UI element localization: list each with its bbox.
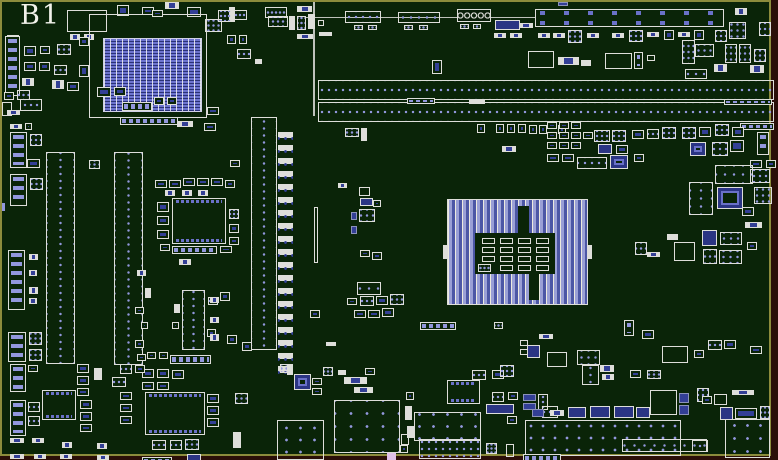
smd-cap[interactable]	[120, 392, 132, 400]
smd-cut[interactable]	[529, 274, 539, 300]
smd-dots[interactable]	[635, 242, 647, 255]
smd-cap[interactable]	[376, 296, 388, 305]
smd-cap[interactable]	[742, 207, 754, 216]
smd-cap[interactable]	[142, 382, 154, 390]
smd-dots[interactable]	[268, 16, 288, 27]
smd-cap[interactable]	[39, 62, 50, 71]
smd-dots[interactable]	[629, 30, 643, 42]
smd-dots[interactable]	[112, 377, 126, 387]
smd-cap[interactable]	[24, 62, 36, 71]
smd-cap[interactable]	[157, 202, 169, 212]
smd-dots[interactable]	[577, 157, 607, 169]
smd-res[interactable]	[29, 298, 37, 304]
smd-dots[interactable]	[486, 443, 497, 454]
smd-vconn[interactable]	[8, 250, 25, 310]
smd-qfn[interactable]	[294, 374, 311, 390]
smd-dots[interactable]	[152, 440, 166, 450]
smd-cap[interactable]	[79, 37, 89, 46]
smd-dots[interactable]	[695, 44, 714, 57]
smd-cap[interactable]	[28, 365, 38, 372]
smd-cap[interactable]	[347, 298, 357, 305]
pcb-board-canvas[interactable]: B1	[0, 0, 771, 456]
smd-res[interactable]	[750, 65, 764, 73]
smd-dots[interactable]	[297, 16, 306, 30]
smd-res[interactable]	[97, 443, 107, 449]
smd-res[interactable]	[29, 270, 37, 276]
smd-cap[interactable]	[732, 127, 744, 137]
smd-pads-h[interactable]	[407, 98, 435, 104]
smd-dots[interactable]	[500, 365, 514, 377]
smd-tick[interactable]	[469, 99, 485, 104]
smd-dots[interactable]	[594, 130, 610, 142]
smd-cap[interactable]	[518, 247, 531, 253]
smd-dots[interactable]	[739, 44, 751, 63]
smd-cap[interactable]	[664, 30, 674, 40]
smd-bluechip[interactable]	[598, 144, 612, 154]
smd-cap[interactable]	[77, 364, 89, 373]
smd-cap[interactable]	[539, 125, 547, 134]
smd-cap[interactable]	[220, 246, 232, 253]
smd-res[interactable]	[502, 146, 516, 152]
io-chip-qfp[interactable]	[42, 390, 76, 420]
smd-res[interactable]	[29, 287, 38, 294]
smd-outline[interactable]	[401, 434, 409, 445]
smd-cap[interactable]	[571, 142, 581, 149]
smd-part[interactable]	[233, 432, 241, 448]
smd-res[interactable]	[62, 442, 72, 448]
smd-part[interactable]	[443, 245, 448, 259]
smd-res[interactable]	[550, 410, 564, 416]
smd-dots[interactable]	[685, 69, 707, 79]
smd-res[interactable]	[647, 32, 659, 37]
smd-res[interactable]	[553, 33, 565, 38]
smd-cap[interactable]	[571, 122, 581, 129]
northbridge-bga[interactable]	[103, 38, 202, 112]
smd-dots[interactable]	[703, 249, 717, 264]
smd-dots[interactable]	[460, 24, 469, 29]
smd-bluechip[interactable]	[568, 407, 586, 418]
smd-part[interactable]	[145, 288, 151, 298]
smd-dots[interactable]	[345, 128, 359, 137]
smd-part[interactable]	[405, 406, 412, 420]
smd-cap[interactable]	[368, 310, 380, 318]
smd-cap[interactable]	[229, 224, 239, 233]
smd-cap[interactable]	[207, 107, 219, 115]
smd-dots[interactable]	[29, 332, 42, 345]
header-footprint[interactable]	[345, 11, 381, 23]
smd-cap[interactable]	[547, 132, 557, 139]
smd-cap[interactable]	[702, 396, 712, 404]
smd-dots[interactable]	[29, 349, 42, 361]
smd-res[interactable]	[714, 64, 727, 72]
smd-dots[interactable]	[682, 40, 695, 64]
smd-cap[interactable]	[547, 142, 557, 149]
smd-dots[interactable]	[612, 130, 626, 142]
smd-dots[interactable]	[472, 370, 486, 380]
smd-cap[interactable]	[197, 178, 209, 186]
smd-cap[interactable]	[583, 132, 593, 139]
smd-tick[interactable]	[667, 234, 678, 240]
smd-pad[interactable]	[2, 203, 5, 211]
smd-cap[interactable]	[207, 418, 219, 427]
smd-res[interactable]	[165, 2, 179, 9]
smd-tick[interactable]	[319, 32, 332, 36]
smd-tick[interactable]	[255, 59, 262, 64]
smd-dots[interactable]	[708, 340, 722, 350]
smd-qfp[interactable]	[447, 380, 480, 404]
smd-cap[interactable]	[154, 97, 164, 105]
header-footprint[interactable]	[398, 12, 440, 23]
smd-res[interactable]	[22, 78, 34, 86]
smd-cap[interactable]	[735, 408, 757, 419]
smd-dots[interactable]	[237, 49, 251, 59]
smd-vconn[interactable]	[10, 400, 26, 436]
smd-cap[interactable]	[432, 60, 442, 74]
smd-cap[interactable]	[699, 127, 711, 137]
smd-pads-h[interactable]	[420, 322, 456, 330]
smd-part[interactable]	[287, 365, 293, 375]
smd-cap[interactable]	[500, 247, 513, 253]
smd-dots[interactable]	[120, 364, 132, 374]
smd-cap[interactable]	[536, 256, 549, 262]
smd-dots[interactable]	[682, 127, 696, 139]
smd-outline[interactable]	[359, 187, 370, 196]
smd-pads-h[interactable]	[122, 102, 152, 111]
smd-cap[interactable]	[27, 159, 40, 168]
smd-cap[interactable]	[647, 55, 655, 61]
smd-cap[interactable]	[135, 365, 145, 373]
smd-dots[interactable]	[57, 44, 71, 55]
smd-cap[interactable]	[137, 354, 146, 361]
smd-dots[interactable]	[473, 24, 481, 29]
smd-cap[interactable]	[114, 87, 126, 96]
super-io-qfp[interactable]	[145, 392, 205, 435]
audio-jacks-footprint[interactable]	[457, 9, 491, 22]
smd-cap[interactable]	[172, 370, 184, 379]
smd-bluechip[interactable]	[614, 406, 634, 418]
smd-cap[interactable]	[694, 30, 704, 40]
smd-res[interactable]	[210, 334, 219, 341]
component-outline[interactable]	[674, 242, 695, 261]
smd-dots[interactable]	[218, 10, 232, 22]
smd-res[interactable]	[32, 438, 44, 443]
smd-cap[interactable]	[630, 370, 641, 378]
smd-cap[interactable]	[547, 122, 557, 129]
smd-dots[interactable]	[357, 282, 381, 295]
smd-bluechip[interactable]	[360, 198, 373, 206]
smd-part[interactable]	[174, 304, 180, 313]
smd-cap[interactable]	[632, 130, 644, 139]
smd-cap[interactable]	[24, 46, 36, 56]
smd-res[interactable]	[735, 8, 747, 15]
smd-cap[interactable]	[312, 378, 322, 385]
smd-cap[interactable]	[318, 20, 324, 26]
smd-res[interactable]	[612, 33, 624, 38]
smd-padd[interactable]	[679, 393, 689, 403]
smd-qfn[interactable]	[690, 142, 706, 156]
smd-cap[interactable]	[529, 125, 537, 134]
smd-cap[interactable]	[562, 154, 574, 162]
smd-cap[interactable]	[482, 247, 495, 253]
smd-pads-h[interactable]	[724, 99, 772, 105]
connector-footprint[interactable]	[277, 420, 324, 460]
smd-cap[interactable]	[147, 352, 156, 359]
smd-dots[interactable]	[719, 250, 742, 264]
edge-connector[interactable]	[5, 36, 20, 96]
smd-cap[interactable]	[507, 416, 517, 424]
smd-cap[interactable]	[571, 132, 581, 139]
smd-res[interactable]	[210, 317, 219, 323]
smd-cap[interactable]	[360, 250, 370, 257]
component-outline[interactable]	[605, 53, 632, 69]
smd-cap[interactable]	[135, 340, 144, 348]
smd-res[interactable]	[177, 121, 193, 127]
smd-cap[interactable]	[80, 424, 92, 432]
pin-header[interactable]	[725, 419, 770, 458]
smd-res[interactable]	[182, 190, 192, 196]
smd-res[interactable]	[344, 377, 367, 384]
pci-slot-1[interactable]	[46, 152, 75, 364]
smd-bluechip[interactable]	[702, 230, 717, 246]
smd-cap[interactable]	[354, 310, 366, 318]
smd-dots[interactable]	[28, 416, 40, 426]
smd-cap[interactable]	[152, 10, 163, 17]
smd-cap[interactable]	[536, 247, 549, 253]
smd-vconn[interactable]	[8, 332, 26, 362]
smd-cap[interactable]	[365, 368, 375, 375]
smd-res[interactable]	[678, 32, 690, 37]
smd-res[interactable]	[10, 454, 24, 459]
smd-vconn[interactable]	[634, 52, 643, 69]
smd-res[interactable]	[558, 57, 579, 65]
smd-dots[interactable]	[760, 406, 770, 419]
smd-res[interactable]	[297, 6, 312, 12]
smd-dots[interactable]	[359, 209, 375, 222]
smd-dots[interactable]	[404, 25, 413, 30]
smd-dots[interactable]	[754, 187, 772, 204]
smd-cap[interactable]	[159, 352, 168, 359]
smd-part[interactable]	[587, 245, 592, 259]
smd-pads-h[interactable]	[120, 117, 178, 125]
smd-cap[interactable]	[634, 154, 644, 162]
smd-cap[interactable]	[482, 256, 495, 262]
smd-padd[interactable]	[523, 394, 536, 401]
smd-res[interactable]	[539, 334, 553, 339]
smd-pads-h[interactable]	[170, 355, 211, 364]
smd-dots[interactable]	[233, 10, 247, 20]
smd-cap[interactable]	[80, 400, 92, 409]
smd-res[interactable]	[510, 33, 522, 38]
smd-cap[interactable]	[518, 124, 526, 133]
smd-dots[interactable]	[323, 367, 333, 376]
smd-cap[interactable]	[750, 346, 762, 354]
chipset-qfp[interactable]	[172, 198, 226, 244]
smd-cap[interactable]	[547, 154, 559, 162]
smd-res[interactable]	[137, 270, 146, 276]
smd-cap[interactable]	[518, 238, 531, 244]
smd-dots[interactable]	[28, 402, 40, 412]
smd-outline[interactable]	[714, 394, 727, 405]
smd-dots[interactable]	[20, 99, 42, 111]
smd-bluechip[interactable]	[636, 407, 650, 418]
smd-dots[interactable]	[568, 30, 582, 43]
smd-vconn[interactable]	[10, 364, 26, 392]
smd-cap[interactable]	[559, 132, 569, 139]
smd-dots[interactable]	[89, 160, 100, 169]
smd-cap[interactable]	[642, 330, 654, 339]
smd-cap[interactable]	[77, 388, 89, 396]
smd-cap[interactable]	[373, 200, 381, 207]
smd-dots[interactable]	[754, 49, 766, 62]
smd-cap[interactable]	[183, 178, 195, 186]
smd-dots[interactable]	[390, 294, 404, 305]
smd-cap[interactable]	[207, 406, 219, 415]
smd-cut[interactable]	[518, 206, 529, 234]
smd-cap[interactable]	[747, 242, 757, 250]
smd-bluechip[interactable]	[590, 406, 610, 418]
smd-cap[interactable]	[120, 404, 132, 412]
smd-cap[interactable]	[482, 238, 495, 244]
smd-cap[interactable]	[477, 124, 485, 133]
smd-dots[interactable]	[759, 22, 771, 36]
smd-res[interactable]	[602, 374, 614, 380]
smd-dots[interactable]	[647, 129, 659, 139]
smd-dots[interactable]	[750, 169, 770, 183]
smd-cap[interactable]	[40, 46, 50, 54]
smd-dots[interactable]	[692, 440, 708, 452]
smd-cap[interactable]	[766, 160, 776, 168]
smd-dots[interactable]	[720, 232, 742, 245]
smd-res[interactable]	[338, 183, 347, 188]
component-outline[interactable]	[528, 51, 554, 68]
smd-cap[interactable]	[559, 122, 569, 129]
smd-outline[interactable]	[547, 352, 567, 367]
smd-cap[interactable]	[4, 92, 14, 100]
header-footprint[interactable]	[419, 439, 481, 459]
smd-padd[interactable]	[532, 409, 544, 417]
smd-res[interactable]	[29, 254, 38, 260]
smd-res[interactable]	[587, 33, 599, 38]
smd-cap[interactable]	[724, 340, 736, 349]
smd-cap[interactable]	[239, 35, 247, 44]
connector-footprint[interactable]	[414, 412, 481, 441]
smd-cap[interactable]	[169, 180, 181, 188]
smd-cap[interactable]	[141, 322, 148, 329]
smd-res[interactable]	[34, 454, 46, 459]
smd-cap[interactable]	[157, 382, 169, 390]
smd-cap[interactable]	[225, 180, 235, 188]
smd-dots[interactable]	[30, 134, 42, 146]
smd-tick[interactable]	[326, 342, 336, 346]
smd-cap[interactable]	[400, 445, 408, 453]
pci-slot-2[interactable]	[114, 152, 143, 365]
smd-cap[interactable]	[372, 252, 382, 260]
smd-res[interactable]	[10, 438, 24, 443]
smd-cap[interactable]	[167, 97, 177, 105]
smd-outline[interactable]	[662, 346, 688, 363]
smd-dots[interactable]	[354, 25, 363, 30]
smd-cap[interactable]	[694, 350, 704, 358]
smd-res[interactable]	[745, 222, 762, 228]
clock-gen-qfn[interactable]	[717, 187, 743, 209]
trace-outline[interactable]	[314, 207, 318, 263]
smd-padd[interactable]	[351, 212, 357, 220]
smd-cap[interactable]	[730, 140, 744, 152]
smd-part[interactable]	[289, 16, 295, 30]
smd-vconn[interactable]	[10, 174, 27, 206]
smd-dots[interactable]	[725, 44, 737, 63]
connector-footprint[interactable]	[334, 400, 400, 453]
smd-dots[interactable]	[54, 65, 67, 75]
smd-pads-h[interactable]	[172, 246, 217, 254]
smd-cap[interactable]	[220, 292, 230, 301]
smd-cap[interactable]	[508, 392, 518, 400]
smd-dots[interactable]	[360, 296, 374, 306]
smd-column[interactable]	[278, 132, 293, 377]
smd-dots[interactable]	[419, 25, 428, 30]
smd-cap[interactable]	[204, 123, 216, 131]
smd-padd[interactable]	[351, 226, 357, 234]
smd-dots[interactable]	[715, 124, 729, 136]
smd-res[interactable]	[7, 110, 20, 115]
smd-part[interactable]	[308, 14, 315, 29]
smd-cap[interactable]	[616, 145, 628, 154]
smd-cap[interactable]	[80, 412, 92, 421]
smd-cap[interactable]	[496, 124, 504, 133]
smd-cap[interactable]	[157, 230, 169, 239]
smd-cap[interactable]	[97, 87, 111, 97]
smd-padd[interactable]	[679, 405, 689, 415]
smd-cap[interactable]	[135, 307, 144, 314]
highlight-mark[interactable]	[387, 453, 396, 460]
smd-dots[interactable]	[185, 439, 199, 450]
smd-part[interactable]	[361, 128, 367, 141]
crystal-outline[interactable]	[650, 390, 677, 415]
dimm-slot-1[interactable]	[318, 80, 774, 100]
smd-dots[interactable]	[662, 127, 676, 139]
smd-dots[interactable]	[170, 440, 182, 450]
smd-dots[interactable]	[689, 182, 713, 215]
smd-cap[interactable]	[120, 416, 132, 424]
smd-cap[interactable]	[155, 180, 167, 188]
smd-res[interactable]	[10, 124, 22, 129]
smd-res[interactable]	[97, 455, 109, 460]
pci-slot-3[interactable]	[251, 117, 277, 350]
smd-cap[interactable]	[230, 160, 240, 167]
smd-padd[interactable]	[558, 2, 568, 6]
smd-res[interactable]	[538, 33, 550, 38]
dimm-slot-2[interactable]	[318, 102, 774, 122]
smd-res[interactable]	[494, 33, 506, 38]
smd-vconn[interactable]	[624, 320, 634, 336]
smd-dots[interactable]	[494, 322, 503, 329]
smd-cap[interactable]	[518, 265, 531, 271]
smd-cap[interactable]	[157, 369, 169, 378]
smd-res[interactable]	[297, 34, 313, 39]
smd-cap[interactable]	[406, 392, 414, 400]
smd-dots[interactable]	[30, 178, 43, 190]
smd-cap[interactable]	[536, 265, 549, 271]
smd-cap[interactable]	[310, 310, 320, 318]
smd-cap[interactable]	[500, 256, 513, 262]
smd-res[interactable]	[165, 190, 175, 196]
smd-bluechip[interactable]	[486, 404, 514, 414]
smd-cap[interactable]	[77, 376, 89, 385]
smd-cap[interactable]	[507, 124, 515, 133]
smd-vconn[interactable]	[757, 132, 769, 155]
smd-cap[interactable]	[67, 82, 79, 91]
smd-cap[interactable]	[312, 388, 322, 395]
